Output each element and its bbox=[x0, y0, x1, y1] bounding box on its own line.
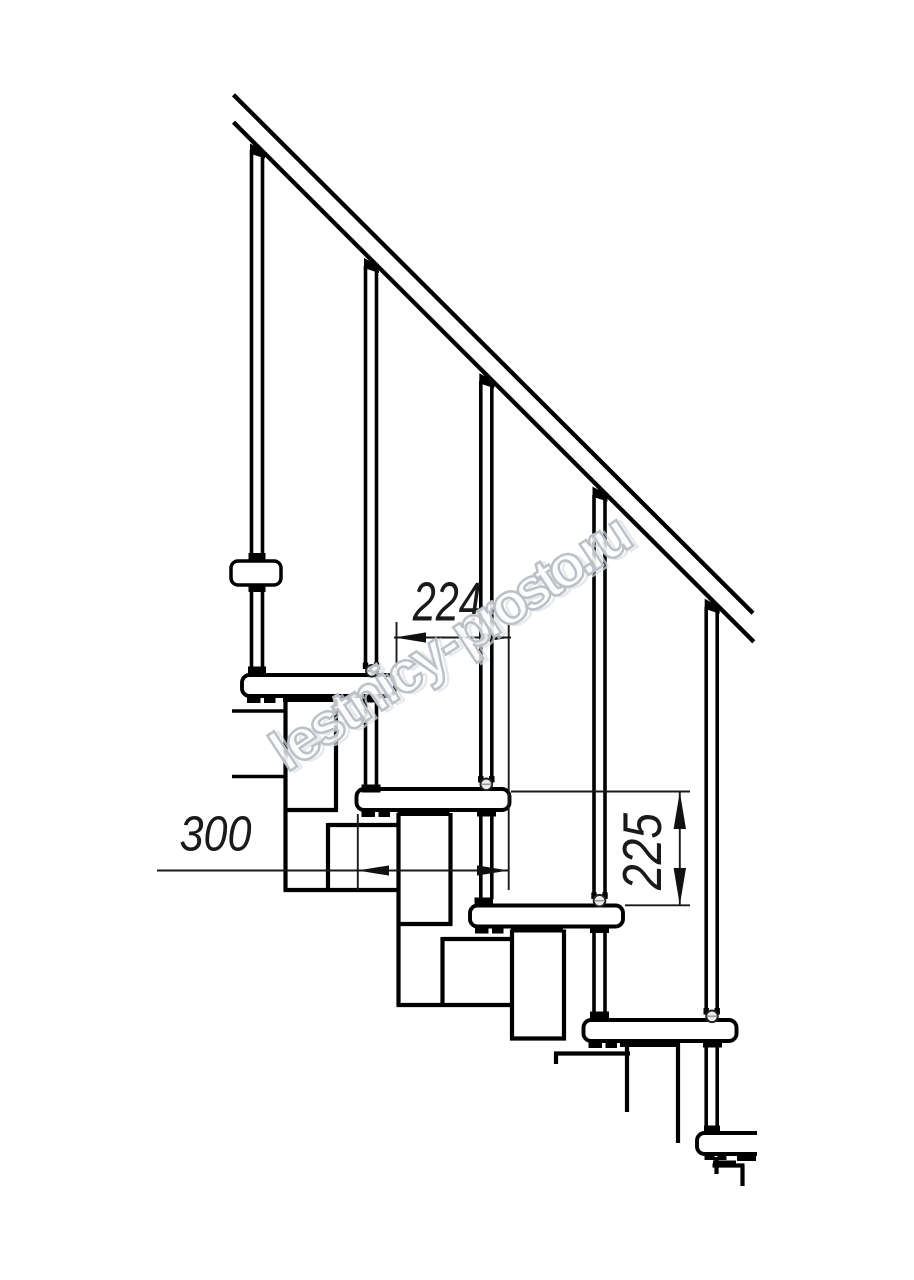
svg-text:225: 225 bbox=[611, 813, 673, 891]
svg-text:300: 300 bbox=[180, 808, 252, 862]
